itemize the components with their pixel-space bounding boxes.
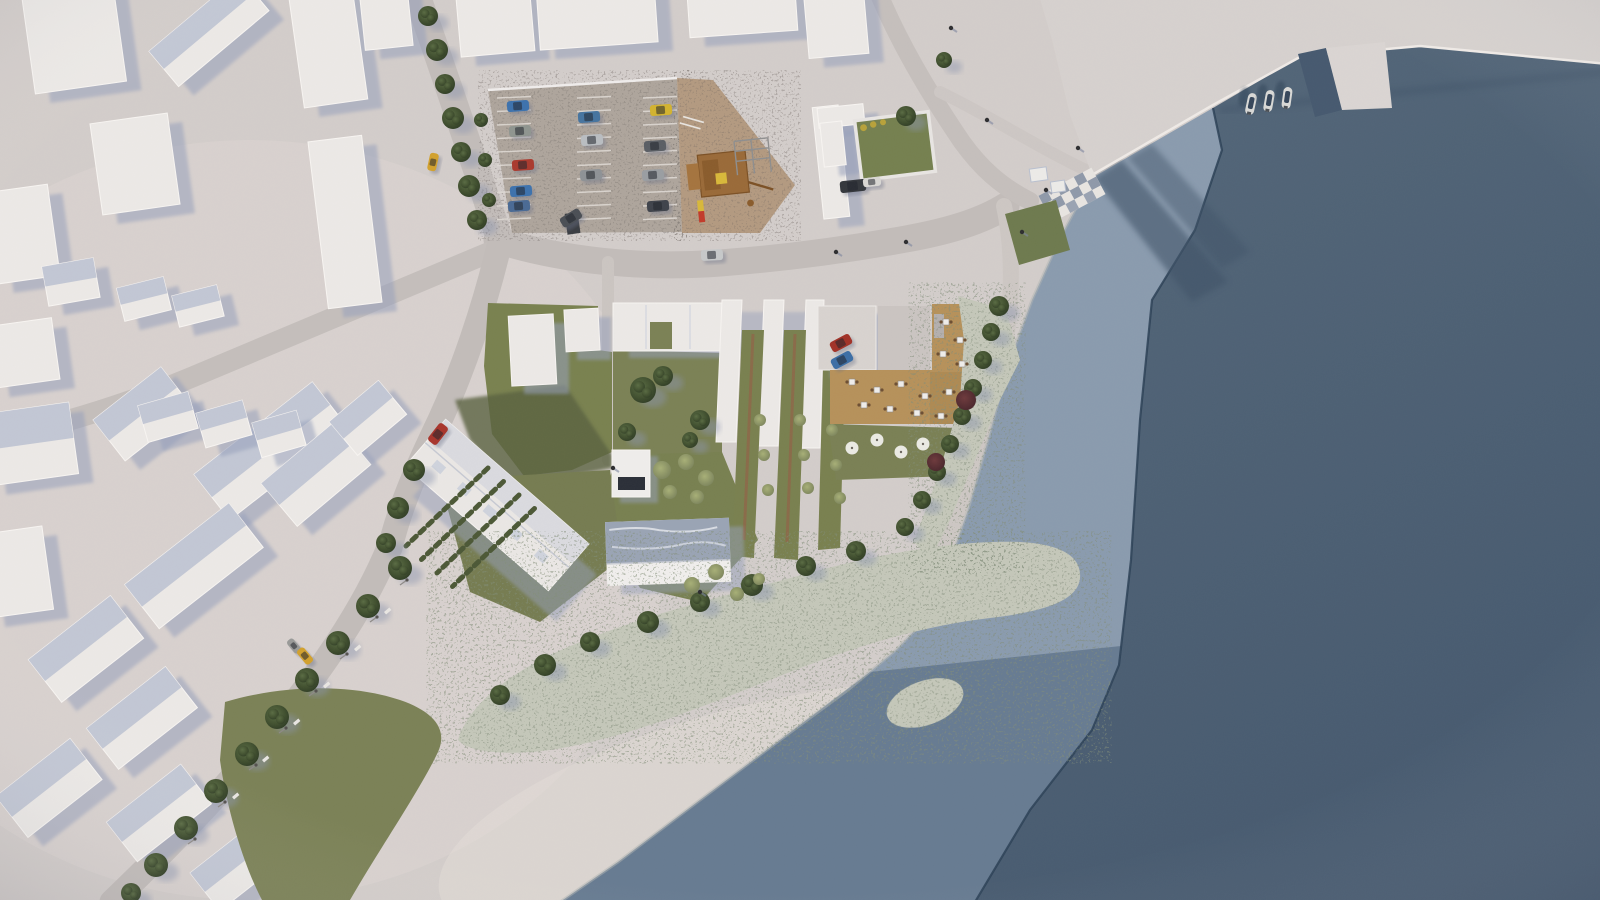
site-plan-canvas: Aerial site-plan rendering of a waterfro…	[0, 0, 1600, 900]
vignette	[0, 0, 1600, 900]
aerial-render: Aerial site-plan rendering of a waterfro…	[0, 0, 1600, 900]
